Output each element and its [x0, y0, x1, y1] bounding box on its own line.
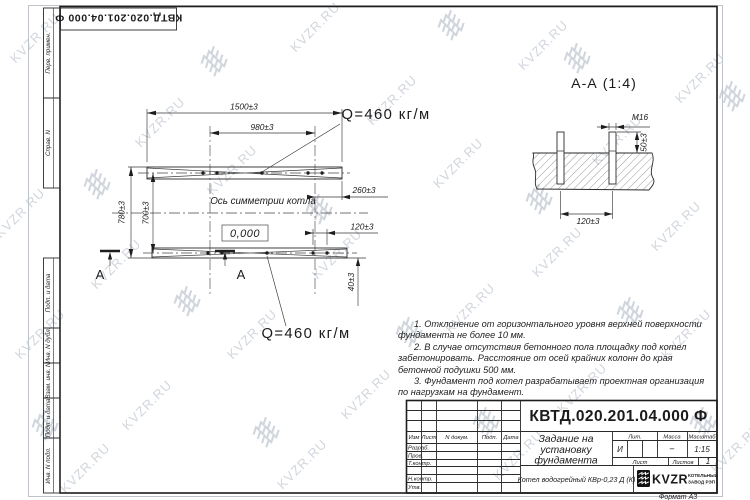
note-1: 1. Отклонение от горизонтального уровня …	[398, 319, 714, 342]
tb-title-line1: Задание на	[539, 434, 594, 445]
dim-40: 40±3	[346, 258, 366, 306]
strip-label-vzam-inv: Взам. инв. N	[45, 362, 52, 399]
tb-row-nkontr: Н.контр.	[408, 477, 433, 483]
strip-label-podp-data-2: Подп. и дата	[45, 398, 52, 437]
tb-title-line3: фундамента	[534, 455, 598, 467]
title-block: Изм Лист N докум. Подп. Дата Разраб. Про…	[407, 401, 718, 494]
dim-980: 980±3	[210, 122, 315, 135]
tb-row-utv: Утв.	[407, 485, 421, 491]
load-top-leader	[262, 124, 340, 172]
dim-50-label: 50±3	[639, 133, 649, 152]
elevation-label: 0,000	[230, 228, 260, 240]
tb-masshtab-value: 1:15	[694, 445, 710, 454]
tb-row-tkontr: Т.контр.	[408, 461, 431, 467]
format-label: Формат А3	[659, 494, 697, 500]
dim-120-plan-label: 120±3	[350, 222, 373, 232]
dim-40-label: 40±3	[346, 272, 356, 291]
top-beam	[138, 167, 350, 179]
drawing-sheet-page: KVZR.RUKVZR.RUKVZR.RUKVZR.RUKVZR.RUKVZR.…	[0, 0, 750, 500]
section-cut-marks: A A	[96, 251, 246, 282]
note-3: 3. Фундамент под котел разрабатывает про…	[398, 376, 714, 399]
notes-block: 1. Отклонение от горизонтального уровня …	[398, 319, 714, 399]
section-letter-mid: A	[237, 267, 246, 282]
symmetry-axis-label: Ось симметрии котла	[210, 196, 316, 207]
side-strip: Перв. примен. Справ. N Подп. и дата Инв.…	[44, 8, 61, 493]
dim-980-label: 980±3	[250, 122, 273, 132]
technical-drawing: Перв. примен. Справ. N Подп. и дата Инв.…	[0, 0, 750, 500]
strip-label-inv-dubl: Инв. N дубл.	[45, 328, 52, 364]
kvzr-logo-sub2: ЗАВОД РЭП	[688, 480, 715, 485]
tb-row-razrab: Разраб.	[408, 446, 429, 452]
tb-massa-label: Масса	[663, 435, 681, 441]
tb-col-ndokum: N докум.	[445, 435, 468, 441]
dim-1500: 1500±3	[147, 102, 342, 163]
corner-stamp: КВТД.020.201.04.000 Ф	[55, 8, 183, 30]
tb-doc-number: КВТД.020.201.04.000 Ф	[529, 408, 707, 425]
tb-lit-value: И	[617, 445, 623, 454]
tb-listov-label: Листов	[671, 460, 693, 466]
strip-label-sprav-n: Справ. N	[45, 130, 52, 156]
concrete-foundation	[533, 153, 654, 190]
tb-title-line2: установку	[539, 445, 592, 456]
tb-listov-value: 1	[706, 457, 710, 466]
column-axes	[210, 126, 315, 294]
dim-260-label: 260±3	[351, 185, 375, 195]
dim-50: 50±3	[617, 132, 649, 153]
dim-260: 260±3	[307, 181, 388, 200]
tb-col-list: Лист	[421, 435, 437, 441]
strip-label-perv-primen: Перв. примен.	[45, 32, 52, 73]
kvzr-logo-text: KVZR	[652, 473, 688, 487]
dim-m16-label: М16	[632, 112, 649, 122]
strip-label-podp-data-1: Подп. и дата	[45, 273, 52, 312]
tb-list-label: Лист	[632, 460, 648, 466]
section-view: А-А (1:4) М16 50±3	[533, 76, 654, 226]
tb-row-prov: Пров.	[408, 454, 423, 460]
tb-massa-value: –	[669, 444, 675, 453]
section-title: А-А (1:4)	[571, 76, 637, 92]
dim-m16: М16	[597, 112, 650, 130]
dim-1500-label: 1500±3	[230, 102, 258, 112]
note-2: 2. В случае отсутствия бетонного пола пл…	[398, 342, 714, 376]
strip-label-inv-podl: Инв. N подл.	[45, 447, 52, 483]
dim-780-label: 780±3	[117, 201, 127, 224]
anchor-bolt-right	[609, 132, 616, 184]
dim-120-section-label: 120±3	[576, 216, 599, 226]
corner-stamp-doc-number: КВТД.020.201.04.000 Ф	[55, 12, 183, 24]
dim-700: 700±3	[141, 173, 156, 253]
load-bottom-leader	[267, 256, 286, 326]
section-letter-left: A	[96, 267, 105, 282]
tb-col-podp: Подп.	[482, 435, 497, 441]
kvzr-logo-sub1: КОТЕЛЬНЫЙ	[688, 471, 718, 478]
tb-col-data: Дата	[502, 435, 519, 441]
tb-masshtab-label: Масштаб	[688, 435, 716, 441]
tb-lit-label: Лит.	[627, 435, 642, 441]
bottom-beam	[143, 248, 357, 258]
tb-col-izm: Изм	[409, 435, 420, 441]
load-top-label: Q=460 кг/м	[341, 107, 430, 123]
tb-product: Котел водогрейный КВр-0,23 Д (К)	[518, 475, 636, 484]
anchor-bolt-left	[557, 132, 564, 184]
dim-700-label: 700±3	[141, 201, 151, 224]
plan-view: 1500±3 980±3 780±3 700±3	[96, 102, 431, 343]
load-bottom-label: Q=460 кг/м	[261, 326, 350, 342]
kvzr-logo: KVZR КОТЕЛЬНЫЙ ЗАВОД РЭП	[637, 470, 718, 487]
dim-120-plan: 120±3	[305, 222, 378, 246]
dim-120-section: 120±3	[561, 191, 613, 226]
